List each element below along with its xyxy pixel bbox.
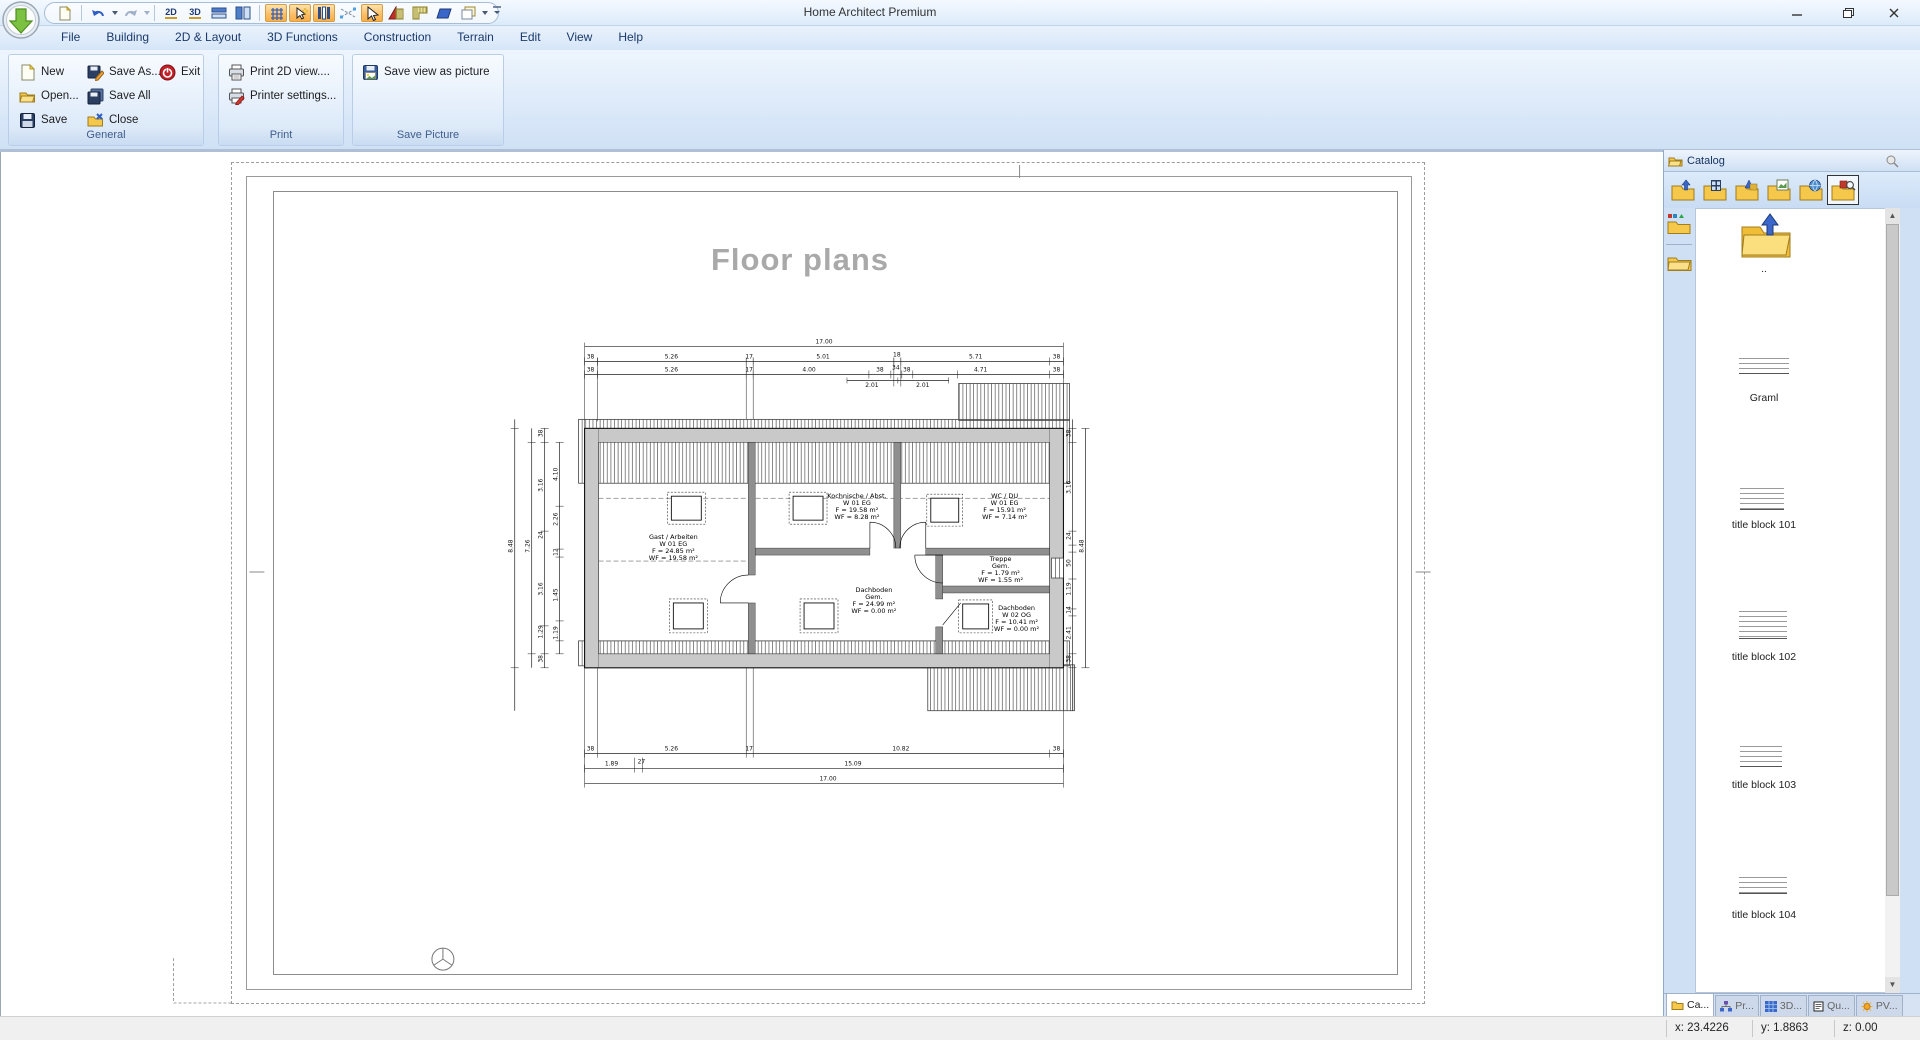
redo-icon	[123, 7, 138, 20]
drawing-frame	[273, 191, 1398, 975]
undo-button[interactable]	[87, 4, 109, 22]
close-folder-icon	[87, 112, 104, 129]
folder-globe-icon	[1798, 179, 1824, 201]
document-icon	[1813, 1001, 1824, 1012]
ribbon-tab-bar: File Building 2D & Layout 3D Functions C…	[0, 26, 1920, 50]
tile-vertical-button[interactable]	[232, 4, 254, 22]
tab-label: 3D...	[1780, 1000, 1802, 1012]
catalog-object-search-button[interactable]	[1827, 175, 1859, 205]
catalog-header: Catalog	[1664, 150, 1920, 172]
select-sparkle-icon	[293, 6, 308, 21]
toolbar-overflow-icon	[492, 5, 502, 17]
strip-separator	[1666, 244, 1692, 245]
save-label: Save	[41, 114, 67, 126]
catalog-item-label[interactable]: Graml	[1694, 392, 1834, 404]
scroll-up-button[interactable]: ▲	[1885, 208, 1900, 224]
roof-plane-icon	[436, 7, 452, 20]
catalog-item-preview[interactable]	[1739, 356, 1789, 374]
view-3d-button[interactable]: 3D	[184, 4, 206, 22]
project-tree-icon	[1720, 1001, 1732, 1012]
catalog-item-preview[interactable]	[1739, 609, 1787, 639]
tab-file[interactable]: File	[48, 26, 93, 50]
catalog-item-preview[interactable]	[1739, 875, 1787, 894]
tab-view[interactable]: View	[554, 26, 606, 50]
toolbar-separator	[81, 5, 82, 21]
customize-toolbar-button[interactable]	[492, 5, 502, 20]
tab-edit[interactable]: Edit	[507, 26, 554, 50]
catalog-item-label[interactable]: title block 102	[1694, 651, 1834, 663]
print-2d-view-label: Print 2D view....	[250, 66, 330, 78]
tab-building[interactable]: Building	[93, 26, 162, 50]
auxiliary-axes-button[interactable]	[337, 4, 359, 22]
save-as-label: Save As...	[109, 66, 161, 78]
folder-graphics-icon	[1766, 179, 1792, 201]
tab-terrain[interactable]: Terrain	[444, 26, 507, 50]
save-view-as-picture-label: Save view as picture	[384, 66, 489, 78]
new-button[interactable]: New	[15, 61, 68, 83]
tile-horizontal-button[interactable]	[208, 4, 230, 22]
tab-project[interactable]: Pr...	[1715, 995, 1759, 1016]
tab-2d-layout[interactable]: 2D & Layout	[162, 26, 254, 50]
new-page-icon	[58, 6, 72, 21]
quick-access-toolbar: 2D 3D	[44, 2, 499, 24]
coordinate-z: z: 0.00	[1834, 1020, 1914, 1037]
catalog-item-list[interactable]: .. Graml title block 101 title block 102…	[1695, 208, 1885, 993]
group-label-general: General	[9, 129, 203, 145]
save-all-icon	[87, 88, 104, 105]
pointer-button[interactable]	[361, 4, 383, 22]
roof-plane-tool-button[interactable]	[433, 4, 455, 22]
tab-label: PV...	[1876, 1000, 1898, 1012]
vertical-bars-icon	[317, 6, 331, 20]
catalog-item-preview[interactable]	[1740, 744, 1782, 767]
parent-folder-item[interactable]	[1740, 211, 1792, 264]
save-as-button[interactable]: Save As...	[83, 61, 165, 83]
catalog-item-label[interactable]: title block 103	[1694, 779, 1834, 791]
scrollbar-thumb[interactable]	[1886, 224, 1899, 896]
select-elements-button[interactable]	[289, 4, 311, 22]
view-2d-button[interactable]: 2D	[160, 4, 182, 22]
catalog-3d-objects-button[interactable]	[1731, 175, 1763, 205]
restore-button[interactable]	[1830, 3, 1866, 22]
catalog-item-label[interactable]: title block 101	[1694, 519, 1834, 531]
save-picture-icon	[362, 64, 379, 81]
2d-view-icon: 2D	[165, 7, 177, 19]
printer-settings-icon	[228, 88, 245, 105]
tab-3d-functions[interactable]: 3D Functions	[254, 26, 351, 50]
app-logo-icon	[2, 1, 40, 39]
plain-folder-icon	[1667, 252, 1692, 272]
group-label-print: Print	[219, 129, 343, 145]
exit-button[interactable]: Exit	[155, 61, 204, 83]
save-button[interactable]: Save	[15, 109, 71, 131]
roof-red-icon	[388, 6, 404, 20]
save-all-label: Save All	[109, 90, 151, 102]
tab-catalog[interactable]: Ca...	[1666, 993, 1714, 1016]
catalog-windows-button[interactable]	[1699, 175, 1731, 205]
tab-label: Ca...	[1687, 999, 1709, 1011]
window-title: Home Architect Premium	[640, 5, 1100, 19]
ribbon-group-print: Print 2D view.... Printer settings... Pr…	[218, 54, 344, 146]
catalog-item-label[interactable]: title block 104	[1694, 909, 1834, 921]
open-label: Open...	[41, 90, 79, 102]
toggle-grid-button[interactable]	[265, 4, 287, 22]
catalog-side-strip	[1664, 208, 1695, 993]
roof-corner-tool-button[interactable]	[409, 4, 431, 22]
toolbar-separator	[259, 5, 260, 21]
folder-up-large-icon	[1740, 211, 1792, 259]
catalog-internet-button[interactable]	[1795, 175, 1827, 205]
coordinate-y: y: 1.8863	[1752, 1020, 1830, 1037]
redo-dropdown[interactable]	[144, 11, 150, 15]
cursor-arrow-icon	[365, 6, 379, 21]
tab-3d[interactable]: 3D...	[1760, 995, 1807, 1016]
roof-tool-button[interactable]	[385, 4, 407, 22]
catalog-toolbar	[1664, 172, 1920, 208]
3d-view-icon: 3D	[189, 7, 201, 19]
close-button-ribbon[interactable]: Close	[83, 109, 142, 131]
catalog-scrollbar[interactable]: ▲ ▼	[1885, 208, 1900, 993]
layers-dropdown[interactable]	[482, 11, 488, 15]
catalog-item-preview[interactable]	[1740, 486, 1784, 510]
pin-icon[interactable]	[1885, 154, 1899, 168]
scroll-down-button[interactable]: ▼	[1885, 977, 1900, 993]
undo-dropdown[interactable]	[112, 11, 118, 15]
layers-icon	[461, 6, 476, 20]
group-label-save-picture: Save Picture	[353, 129, 503, 145]
catalog-up-button[interactable]	[1667, 175, 1699, 205]
printer-settings-button[interactable]: Printer settings...	[224, 85, 340, 107]
grid-icon	[269, 6, 284, 21]
new-file-icon	[19, 64, 36, 81]
tab-quantities[interactable]: Qu...	[1808, 995, 1855, 1016]
restore-icon	[1842, 7, 1855, 19]
tab-help[interactable]: Help	[605, 26, 656, 50]
new-label: New	[41, 66, 64, 78]
save-as-icon	[87, 64, 104, 81]
catalog-2d-graphics-button[interactable]	[1763, 175, 1795, 205]
catalog-tab-icon	[1671, 1000, 1684, 1010]
axes-crosshair-icon	[340, 6, 356, 20]
close-label: Close	[109, 114, 138, 126]
roof-corner-icon	[412, 6, 428, 20]
tab-construction[interactable]: Construction	[351, 26, 444, 50]
folder-up-icon	[1670, 179, 1696, 201]
folder-search-icon	[1830, 179, 1856, 201]
status-bar: x: 23.4226 y: 1.8863 z: 0.00	[0, 1016, 1920, 1040]
catalog-title: Catalog	[1687, 155, 1725, 167]
catalog-folder-button[interactable]	[1667, 252, 1692, 277]
page-title: Floor plans	[640, 242, 960, 278]
catalog-panel: Catalog	[1663, 150, 1920, 1016]
exit-label: Exit	[181, 66, 200, 78]
sun-icon	[1861, 1001, 1873, 1012]
application-menu-button[interactable]	[2, 1, 40, 39]
new-drawing-button[interactable]	[54, 4, 76, 22]
save-view-as-picture-button[interactable]: Save view as picture	[358, 61, 493, 83]
ribbon: New Open... Save Save As... Save All Clo…	[0, 50, 1920, 152]
parent-folder-label: ..	[1694, 263, 1834, 275]
print-2d-view-button[interactable]: Print 2D view....	[224, 61, 334, 83]
column-display-button[interactable]	[313, 4, 335, 22]
minimize-button[interactable]	[1779, 3, 1815, 22]
exit-power-icon	[159, 64, 176, 81]
catalog-tab-bar: Ca... Pr... 3D... Qu... PV...	[1664, 993, 1920, 1016]
close-button[interactable]	[1876, 3, 1912, 22]
folder-shapes-icon	[1667, 213, 1692, 234]
drawing-canvas[interactable]: Floor plans	[0, 152, 1663, 1016]
layers-button[interactable]	[457, 4, 479, 22]
save-all-button[interactable]: Save All	[83, 85, 155, 107]
tile-vertical-icon	[235, 6, 251, 20]
ribbon-group-save-picture: Save view as picture Save Picture	[352, 54, 504, 146]
ribbon-group-general: New Open... Save Save As... Save All Clo…	[8, 54, 204, 146]
tab-pv[interactable]: PV...	[1856, 995, 1903, 1016]
undo-icon	[91, 7, 106, 20]
catalog-folder-icon	[1668, 155, 1683, 167]
minimize-icon	[1791, 7, 1803, 19]
coordinate-x: x: 23.4226	[1666, 1020, 1748, 1037]
open-folder-icon	[19, 88, 36, 105]
save-floppy-icon	[19, 112, 36, 129]
catalog-objects-group-button[interactable]	[1667, 213, 1692, 239]
redo-button[interactable]	[119, 4, 141, 22]
3d-grid-icon	[1765, 1001, 1777, 1012]
folder-windows-icon	[1702, 179, 1728, 201]
folder-3d-objects-icon	[1734, 179, 1760, 201]
toolbar-separator	[154, 5, 155, 21]
close-icon	[1888, 7, 1900, 19]
printer-icon	[228, 64, 245, 81]
tile-horizontal-icon	[211, 6, 227, 20]
tab-label: Qu...	[1827, 1000, 1850, 1012]
printer-settings-label: Printer settings...	[250, 90, 336, 102]
tab-label: Pr...	[1735, 1000, 1754, 1012]
open-button[interactable]: Open...	[15, 85, 83, 107]
